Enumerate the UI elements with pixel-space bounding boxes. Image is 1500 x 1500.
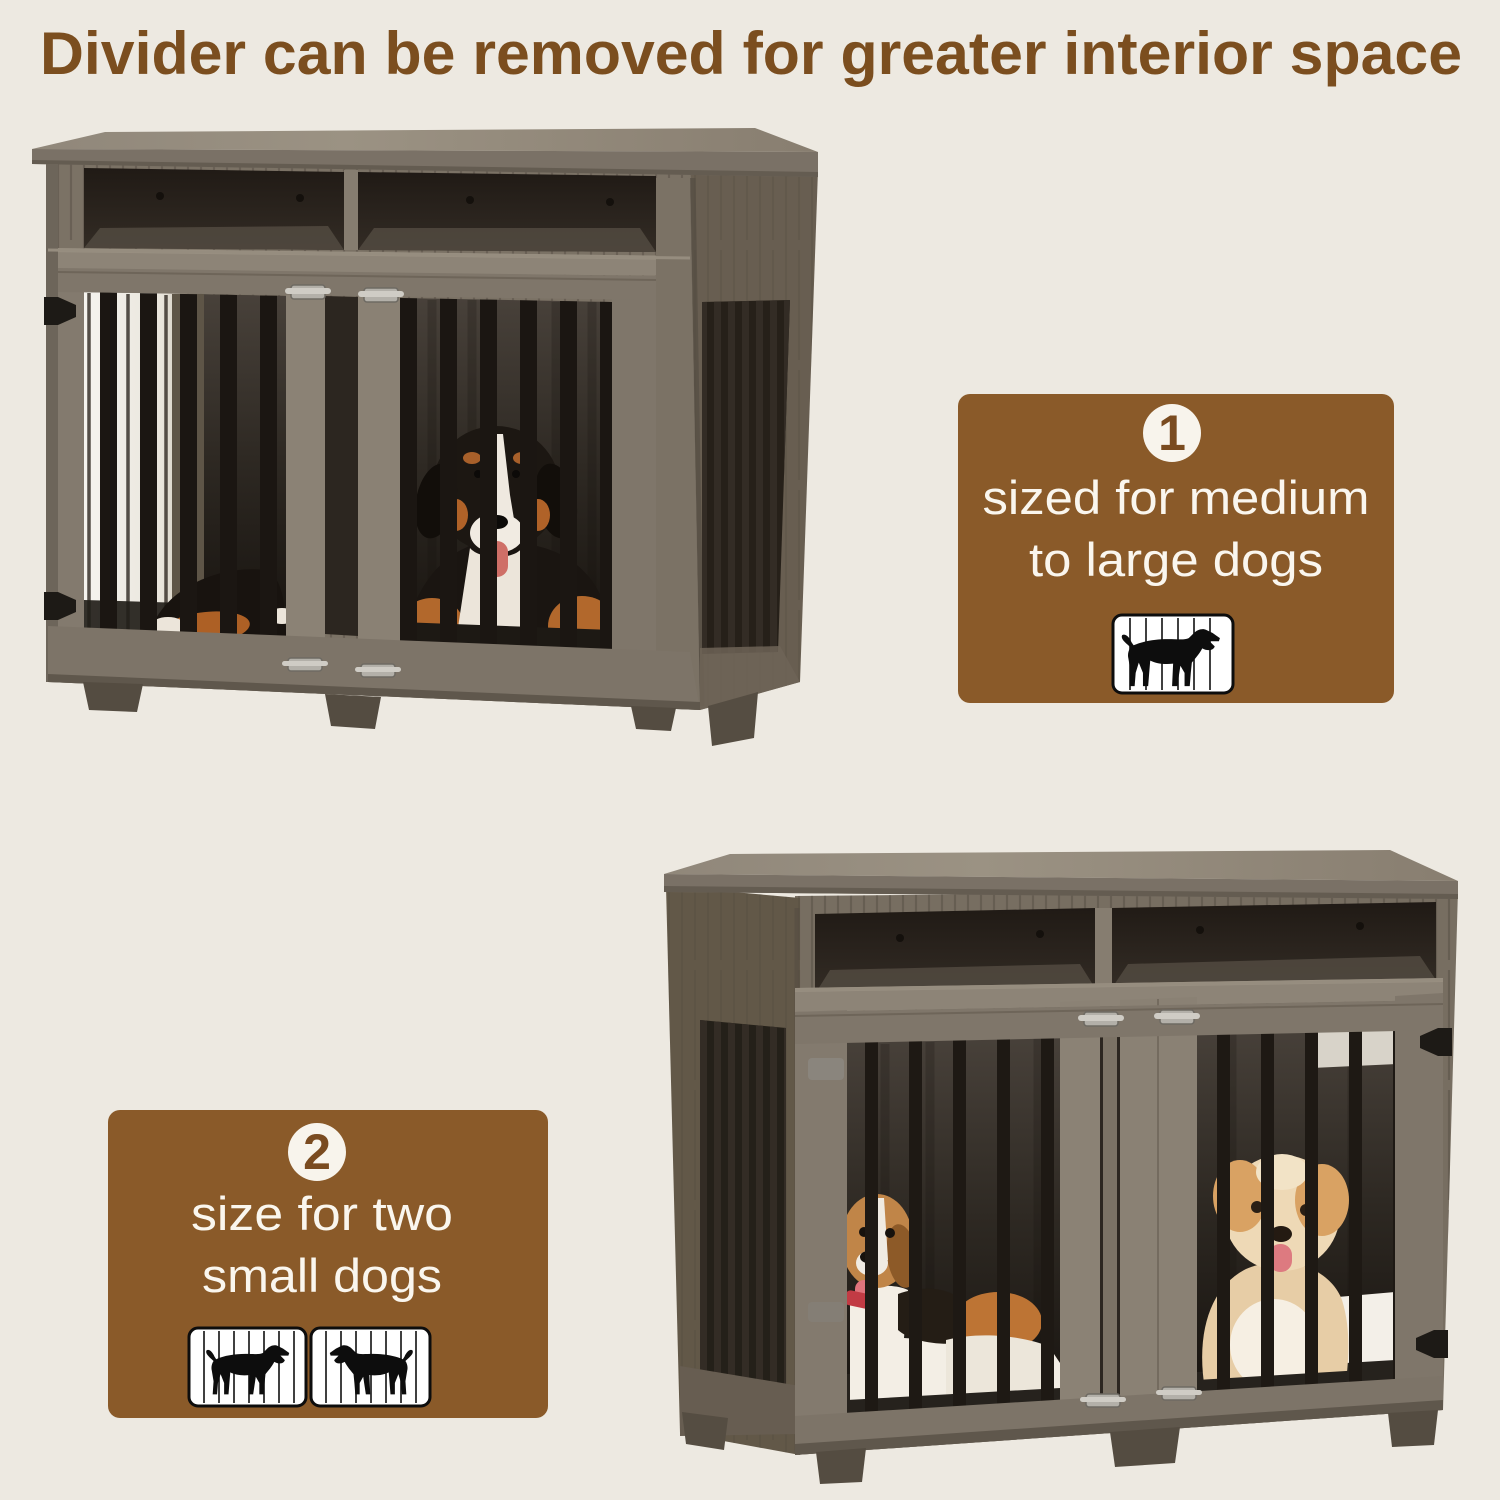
svg-text:2: 2	[303, 1124, 331, 1180]
svg-text:1: 1	[1158, 405, 1186, 461]
svg-text:size for two: size for two	[191, 1187, 453, 1240]
svg-text:sized for medium: sized for medium	[983, 471, 1370, 524]
svg-text:to large dogs: to large dogs	[1029, 533, 1323, 586]
svg-text:small dogs: small dogs	[202, 1249, 442, 1302]
svg-text:Divider can be removed for gre: Divider can be removed for greater inter…	[40, 20, 1462, 87]
